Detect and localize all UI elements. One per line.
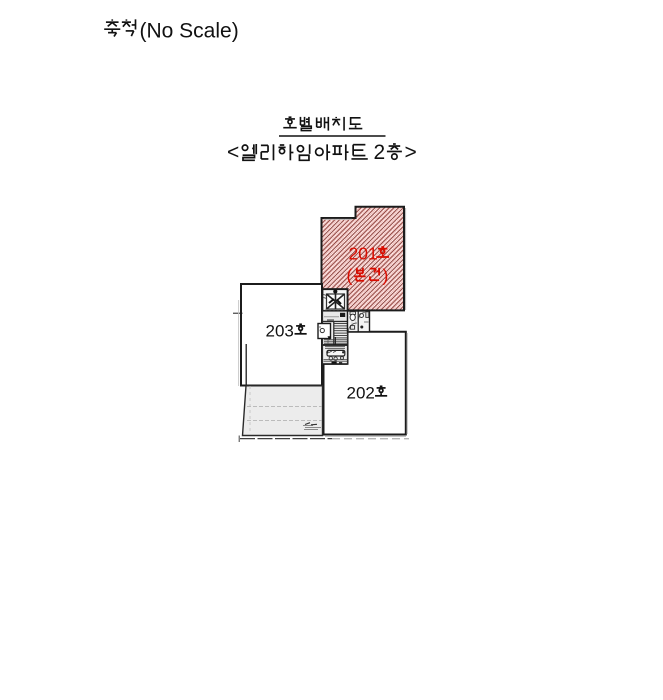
svg-text:203: 203 [266,322,294,341]
svg-text:201: 201 [349,244,378,264]
svg-text:202: 202 [347,384,375,403]
svg-text:(No Scale): (No Scale) [140,20,239,43]
svg-text:(: ( [347,266,353,286]
svg-text:): ) [383,266,389,286]
svg-text:2: 2 [374,141,386,164]
svg-text:>: > [405,141,417,164]
svg-text:<: < [227,141,239,164]
